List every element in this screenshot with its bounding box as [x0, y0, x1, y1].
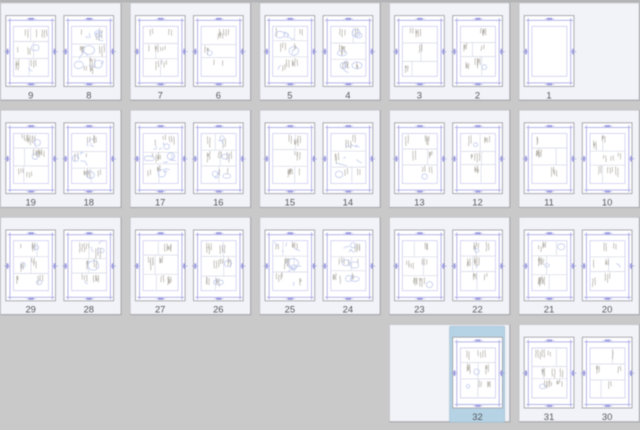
svg-text:4: 4 — [345, 89, 350, 100]
svg-text:2: 2 — [475, 89, 480, 100]
svg-text:23: 23 — [414, 304, 424, 315]
svg-text:26: 26 — [213, 304, 223, 315]
svg-text:15: 15 — [285, 197, 295, 208]
svg-text:13: 13 — [414, 197, 424, 208]
svg-text:29: 29 — [25, 304, 35, 315]
svg-text:25: 25 — [285, 304, 295, 315]
svg-text:20: 20 — [602, 304, 612, 315]
svg-text:3: 3 — [417, 89, 422, 100]
svg-text:19: 19 — [25, 197, 35, 208]
svg-text:27: 27 — [155, 304, 165, 315]
svg-text:22: 22 — [472, 304, 482, 315]
svg-text:16: 16 — [213, 197, 223, 208]
svg-text:9: 9 — [28, 89, 33, 100]
svg-text:7: 7 — [158, 89, 163, 100]
svg-text:1: 1 — [546, 89, 551, 100]
svg-text:31: 31 — [544, 411, 554, 422]
svg-text:21: 21 — [544, 304, 554, 315]
svg-text:18: 18 — [84, 197, 94, 208]
svg-text:32: 32 — [472, 411, 482, 422]
svg-text:10: 10 — [602, 197, 612, 208]
svg-text:30: 30 — [602, 411, 612, 422]
svg-text:14: 14 — [343, 197, 353, 208]
svg-text:28: 28 — [84, 304, 94, 315]
svg-text:11: 11 — [544, 197, 554, 208]
svg-text:17: 17 — [155, 197, 165, 208]
svg-text:6: 6 — [216, 89, 221, 100]
svg-text:24: 24 — [343, 304, 353, 315]
svg-text:5: 5 — [287, 89, 292, 100]
svg-text:8: 8 — [86, 89, 91, 100]
svg-text:12: 12 — [472, 197, 482, 208]
